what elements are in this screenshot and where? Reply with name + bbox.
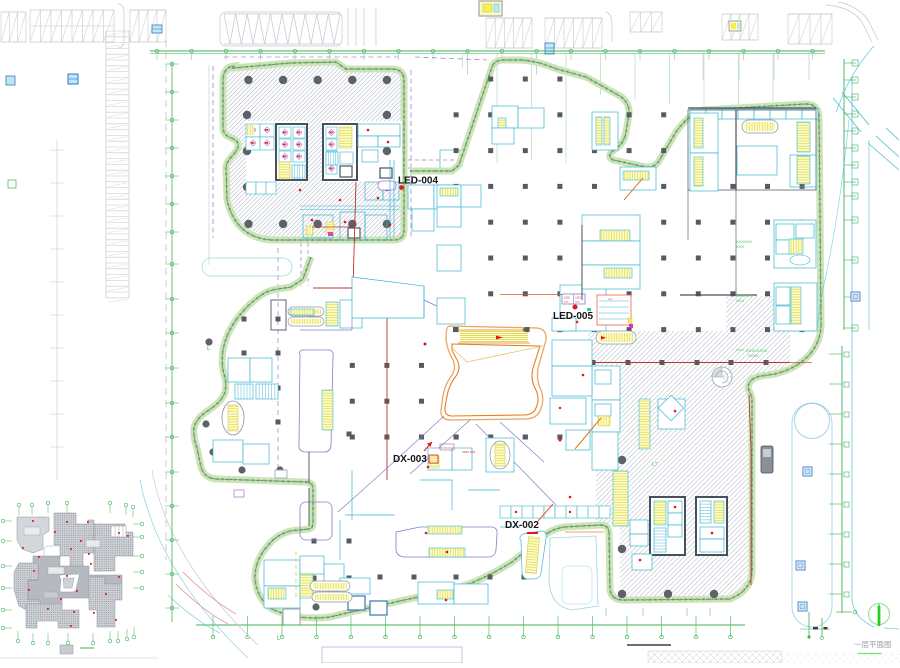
svg-text:xxxx xxx: xxxx xxx [462,450,475,454]
svg-text:一层平面图: 一层平面图 [854,640,892,649]
svg-text:xxx: xxx [564,300,569,304]
svg-text:xxx: xxx [575,300,580,304]
svg-text:LED-004: LED-004 [398,176,438,187]
svg-text:XXX: XXX [736,244,744,249]
svg-text:LED-005: LED-005 [553,311,593,322]
svg-text:xxx: xxx [608,297,613,301]
svg-text:XXX: XXX [736,298,744,303]
svg-text:DX-003: DX-003 [393,454,427,465]
svg-text:L?: L? [652,462,658,468]
svg-text:XXXX: XXXX [748,353,759,358]
svg-text:DX-002: DX-002 [505,520,539,531]
